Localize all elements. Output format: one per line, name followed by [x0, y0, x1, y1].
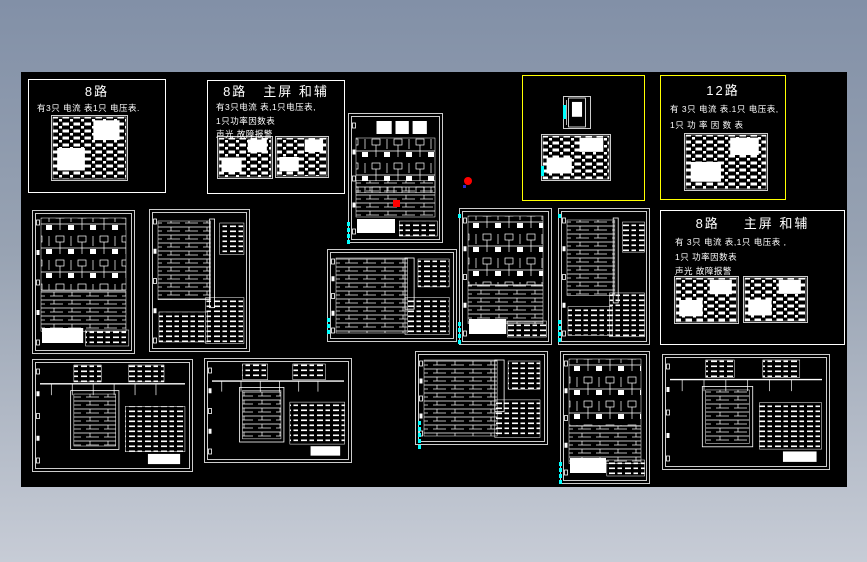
- yellow-highlight-panel-12-lu[interactable]: 12路 有 3只 电流 表.1只 电压表, 1只 功 率 因 数 表: [660, 75, 786, 200]
- wiring-diagram-r3-1[interactable]: [32, 359, 193, 472]
- panel-subtitle: 主屏 和辅: [263, 85, 329, 99]
- cyan-tick-marks: [558, 320, 561, 342]
- drawing-thumbnail[interactable]: [51, 115, 128, 181]
- drawing-thumbnail[interactable]: [743, 276, 808, 323]
- drawing-thumbnail[interactable]: [684, 133, 768, 191]
- drawing-thumbnail[interactable]: [275, 136, 329, 178]
- schematic-drawing-r2-1[interactable]: [32, 210, 135, 354]
- drawing-thumbnail[interactable]: [217, 136, 273, 179]
- red-marker-square: [393, 200, 400, 207]
- panel-title: 8路: [29, 85, 165, 99]
- wiring-diagram-r2-2[interactable]: [149, 209, 250, 352]
- cursor-marker-dot: [464, 177, 472, 185]
- cyan-tick-marks: [559, 462, 562, 484]
- window-frame: { "window": { "canvas_background": "#000…: [0, 0, 867, 562]
- schematic-drawing-r2-4[interactable]: [459, 208, 552, 345]
- panel-line: 有3只 电流 表1只 电压表.: [37, 103, 140, 114]
- panel-line: 1只 功率因数表: [675, 252, 737, 263]
- wiring-diagram-r3-3[interactable]: [415, 351, 548, 445]
- panel-title: 12路: [661, 84, 785, 98]
- cad-canvas[interactable]: 8路 有3只 电流 表1只 电压表. 8路 主屏 和辅 有3只电流 表,1只电压…: [21, 72, 847, 487]
- schematic-drawing-main[interactable]: [348, 113, 443, 243]
- cyan-tick-marks: [347, 222, 350, 244]
- info-panel-8-lu-main-aux[interactable]: 8路 主屏 和辅 有3只电流 表,1只电压表, 1只功率因数表 声光 故障报警: [207, 80, 345, 194]
- info-panel-8-lu[interactable]: 8路 有3只 电流 表1只 电压表.: [28, 79, 166, 193]
- panel-line: 有3只电流 表,1只电压表,: [216, 102, 316, 113]
- panel-title: 8路: [696, 217, 720, 231]
- drawing-thumbnail[interactable]: [674, 276, 739, 324]
- cyan-tick-marks: [458, 214, 461, 218]
- cyan-tick-marks: [458, 322, 461, 344]
- blue-marker-chip: [463, 185, 466, 188]
- panel-line: 1只功率因数表: [216, 116, 275, 127]
- schematic-drawing-r3-4[interactable]: [560, 351, 650, 484]
- panel-title: 8路: [223, 85, 247, 99]
- cyan-tick-marks: [327, 318, 330, 334]
- cyan-tick-marks: [558, 214, 561, 218]
- wiring-diagram-r2-5[interactable]: [558, 208, 650, 345]
- wiring-diagram-r3-5[interactable]: [662, 354, 830, 470]
- cabinet-outline-drawing[interactable]: [563, 96, 591, 129]
- panel-line: 有 3只 电流 表,1只 电压表 ,: [675, 237, 787, 248]
- info-panel-8-lu-main-aux-right[interactable]: 8路 主屏 和辅 有 3只 电流 表,1只 电压表 , 1只 功率因数表 声光 …: [660, 210, 845, 345]
- wiring-diagram-r2-3[interactable]: [327, 249, 457, 342]
- cyan-tick-marks: [541, 166, 544, 176]
- wiring-diagram-r3-2[interactable]: [204, 358, 352, 463]
- drawing-thumbnail[interactable]: [541, 134, 611, 181]
- yellow-highlight-panel-cabinet[interactable]: [522, 75, 645, 201]
- panel-line: 1只 功 率 因 数 表: [670, 120, 744, 131]
- cyan-tick-marks: [563, 105, 566, 119]
- panel-line: 有 3只 电流 表.1只 电压表,: [670, 104, 779, 115]
- panel-subtitle: 主屏 和辅: [744, 217, 810, 231]
- cyan-tick-marks: [418, 421, 421, 449]
